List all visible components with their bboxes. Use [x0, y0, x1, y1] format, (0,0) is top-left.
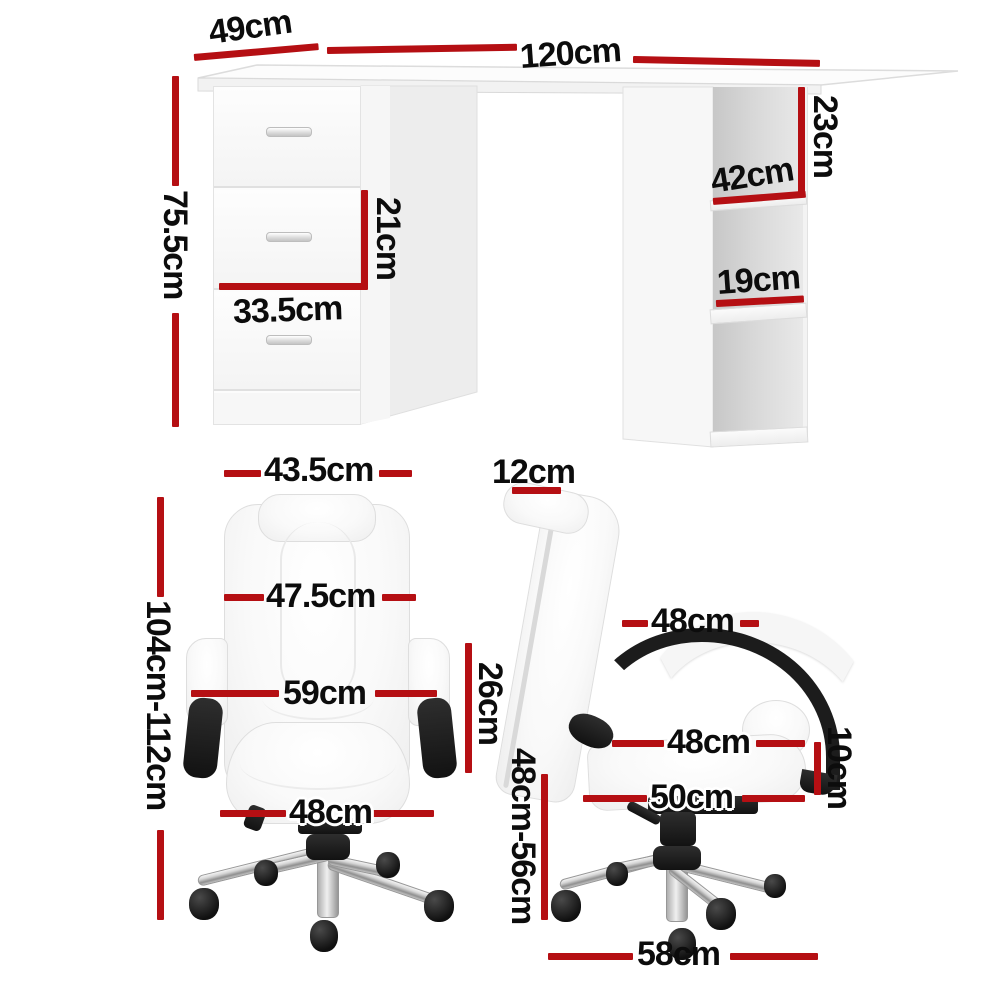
dim-seat-height-line	[541, 774, 548, 920]
dim-drawer-width-label: 33.5cm	[232, 291, 342, 329]
dim-shelf-middle-label: 19cm	[716, 260, 801, 300]
dim-seat-depth-line-left	[612, 740, 664, 747]
chair-front-caster-upleft	[254, 860, 278, 886]
dim-seat-length-label: 50cm	[650, 780, 733, 814]
dim-seat-width-line-right	[373, 810, 434, 817]
dim-overall-height-label: 104cm-112cm	[141, 600, 175, 810]
chair-side-caster-right	[706, 898, 736, 930]
drawer-1	[214, 87, 360, 188]
dim-desk-width-line-left	[327, 44, 517, 54]
drawer-2-handle	[266, 232, 312, 242]
drawer-unit-base	[214, 393, 360, 424]
dim-backrest-width-line-right	[382, 594, 416, 601]
dim-seat-depth-line-right	[756, 740, 805, 747]
dim-seat-thickness-label: 10cm	[822, 726, 856, 809]
chair-front-caster-left	[189, 888, 219, 920]
desk-shelf-left-panel	[622, 86, 715, 451]
chair-side-caster-backleft	[606, 862, 628, 886]
dim-drawer-height-line	[361, 190, 368, 288]
dim-armrest-height-label: 26cm	[473, 662, 507, 745]
dim-backrest-width-line-left	[224, 594, 264, 601]
dim-headrest-thickness-label: 12cm	[492, 455, 575, 489]
chair-front-hub	[306, 834, 350, 860]
dim-base-diameter-line-left	[548, 953, 633, 960]
chair-side-stem	[660, 812, 696, 846]
desk-drawer-unit	[213, 86, 361, 425]
dim-drawer-width-line	[219, 283, 368, 290]
dim-base-diameter-line-right	[730, 953, 818, 960]
dim-side-backrest-line-right	[740, 620, 759, 627]
drawer-1-handle	[266, 127, 312, 137]
dim-headrest-width-label: 43.5cm	[264, 453, 373, 487]
chair-front-seat-seam	[240, 738, 396, 790]
dim-armrest-width-line-right	[375, 690, 437, 697]
dim-overall-height-line-top	[157, 497, 164, 597]
dim-drawer-height-label: 21cm	[371, 197, 405, 280]
drawer-3-handle	[266, 335, 312, 345]
dim-overall-height-line-bottom	[157, 830, 164, 920]
dim-seat-length-line-right	[742, 795, 805, 802]
dim-desk-height-line-top	[172, 76, 179, 186]
dim-backrest-width-label: 47.5cm	[266, 579, 375, 613]
dim-desk-height-label: 75.5cm	[158, 190, 192, 299]
chair-side-caster-left	[551, 890, 581, 922]
dim-base-diameter-label: 58cm	[637, 937, 720, 971]
dimension-diagram: 49cm 120cm 75.5cm 23cm 42cm 19cm 21cm 33…	[0, 0, 1000, 1000]
dim-seat-length-line-left	[583, 795, 647, 802]
dim-headrest-width-line-right	[379, 470, 412, 477]
chair-front-armrest-left-pad	[182, 696, 224, 779]
chair-side-hub	[653, 846, 701, 870]
dim-desk-depth-label: 49cm	[207, 5, 294, 50]
dim-desk-width-label: 120cm	[519, 33, 622, 74]
dim-seat-width-label: 48cm	[289, 795, 372, 829]
dim-seat-height-label: 48cm-56cm	[506, 748, 540, 924]
dim-armrest-width-line-left	[191, 690, 279, 697]
dim-shelf-top-line	[798, 87, 805, 197]
dim-desk-height-line-bottom	[172, 313, 179, 427]
chair-front-caster-bottom	[310, 920, 338, 952]
dim-seat-depth-label: 48cm	[667, 725, 750, 759]
dim-side-backrest-label: 48cm	[651, 604, 734, 638]
dim-armrest-width-label: 59cm	[283, 676, 366, 710]
dim-seat-width-line-left	[220, 810, 286, 817]
chair-front-caster-right	[424, 890, 454, 922]
chair-front-caster-upright	[376, 852, 400, 878]
chair-front-armrest-right-pad	[416, 696, 458, 779]
dim-headrest-width-line-left	[224, 470, 261, 477]
dim-side-backrest-line-left	[622, 620, 648, 627]
dim-shelf-top-label: 23cm	[808, 95, 842, 178]
chair-side-caster-backright	[764, 874, 786, 898]
